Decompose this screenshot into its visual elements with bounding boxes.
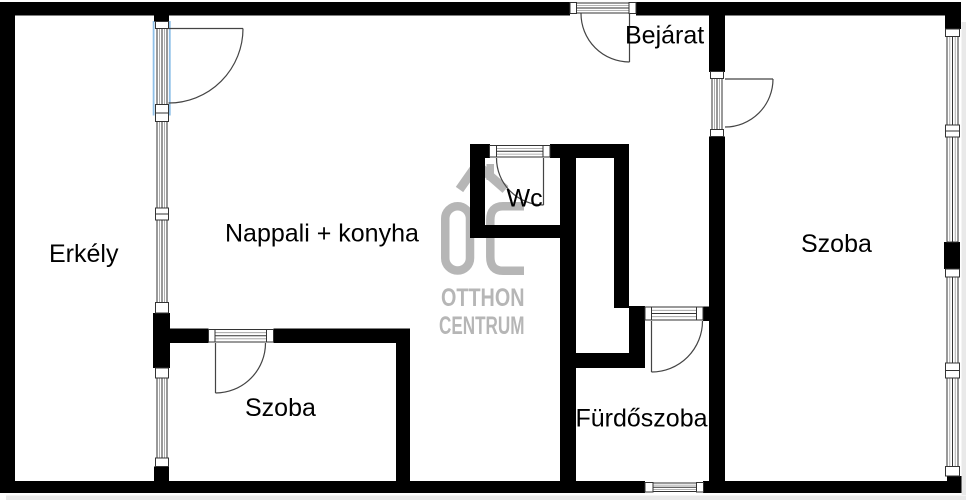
- svg-text:Fürdőszoba: Fürdőszoba: [576, 404, 708, 432]
- svg-text:Erkély: Erkély: [49, 240, 119, 268]
- svg-text:CENTRUM: CENTRUM: [439, 312, 525, 340]
- svg-text:Nappali + konyha: Nappali + konyha: [225, 220, 419, 248]
- svg-text:OTTHON: OTTHON: [441, 284, 525, 312]
- svg-text:Szoba: Szoba: [801, 230, 872, 258]
- svg-text:Szoba: Szoba: [245, 394, 316, 422]
- svg-text:Wc: Wc: [507, 185, 543, 213]
- svg-text:Bejárat: Bejárat: [625, 22, 704, 50]
